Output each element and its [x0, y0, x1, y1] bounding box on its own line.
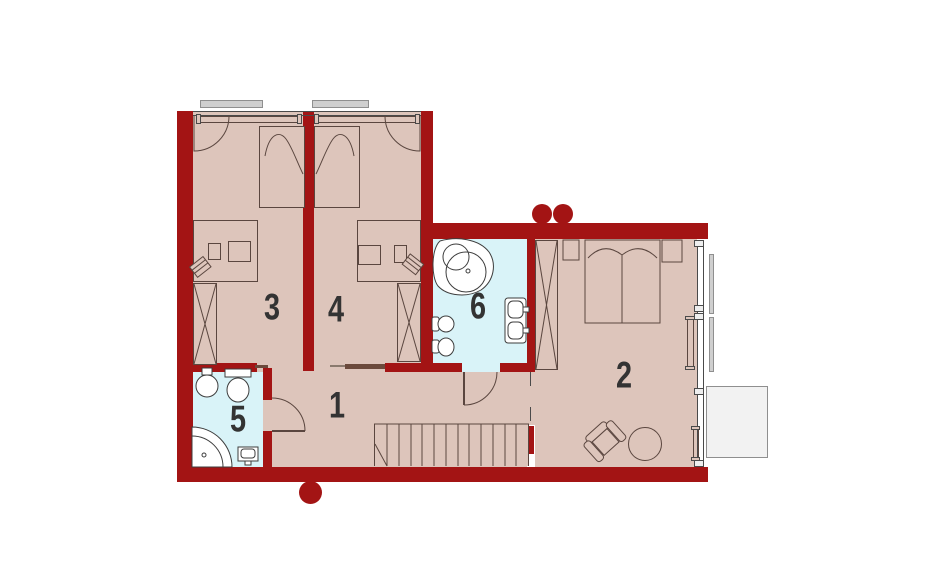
sliding-door-track-room4 [330, 365, 345, 367]
sliding-door-leaf-room4 [345, 364, 385, 369]
bed-room2 [562, 238, 684, 324]
room-label-1: 1 [329, 387, 345, 424]
wardrobe-room3 [193, 283, 217, 365]
room-label-5: 5 [230, 401, 246, 438]
wall-bottom-exterior [177, 467, 708, 482]
wall-under-room4 [385, 363, 462, 372]
radiator-cap [685, 366, 695, 370]
chair-room4 [398, 250, 428, 280]
bidet-bath5 [192, 366, 222, 400]
window-sill-room3 [200, 100, 263, 108]
desk-box-room3 [228, 241, 251, 262]
window-frame-joint [694, 313, 704, 320]
window-sill-room4 [312, 100, 369, 108]
door-swing-bath6 [463, 371, 499, 407]
window-sill-room2-lower [709, 317, 714, 372]
radiator-cap [691, 457, 700, 461]
room-label-2: 2 [616, 357, 632, 394]
room-label-4: 4 [328, 291, 344, 328]
chimney-circle-bottom [299, 481, 322, 504]
staircase [374, 423, 530, 467]
corner-bathtub [431, 237, 497, 299]
window-frame-joint [694, 240, 704, 247]
window-frame-joint [694, 460, 704, 467]
bed-room4 [314, 126, 360, 208]
sliding-door-leaf-room3 [255, 365, 268, 368]
wall-room5-right-lower [263, 431, 272, 467]
window-frame-joint [694, 305, 704, 312]
wardrobe-room4 [397, 283, 421, 362]
window-top-line-outer [193, 111, 421, 112]
radiator-room2-upper [687, 318, 694, 368]
door-swing-bath5 [271, 397, 307, 433]
bidet-bath6 [431, 335, 457, 358]
floor-passage [527, 372, 535, 425]
rail-end-cap [314, 114, 319, 124]
armchair-room2 [584, 420, 630, 464]
window-sill-room2-upper [709, 254, 714, 314]
casement-swing-arc-room4 [383, 115, 421, 153]
wall-room5-right-upper [263, 368, 272, 400]
double-sink-bath6 [504, 296, 532, 346]
chair-room3 [186, 252, 216, 282]
passage-jamb-lower [530, 407, 531, 421]
bed-room3 [259, 126, 305, 208]
room-label-3: 3 [264, 289, 280, 326]
window-frame-joint [694, 388, 704, 395]
passage-jamb-upper [530, 372, 531, 386]
floor-plan: 1 2 3 4 5 6 [0, 0, 940, 587]
balcony [706, 386, 768, 458]
round-table-room2 [628, 427, 662, 461]
corner-shower-bath5 [191, 426, 233, 468]
window-right-line-outer [703, 241, 704, 467]
radiator-cap [685, 316, 695, 320]
wall-bath6-bottom-right [500, 363, 535, 372]
rail-end-cap [297, 114, 302, 124]
wardrobe-room2 [535, 240, 558, 370]
radiator-room2-lower [693, 428, 699, 459]
desk-box-room4 [358, 245, 381, 265]
casement-swing-arc-room3 [193, 115, 231, 153]
toilet-bath6 [431, 313, 457, 335]
room-label-6: 6 [470, 288, 486, 325]
sink-bath5 [237, 446, 261, 467]
chimney-circle-top-left [532, 204, 552, 224]
chimney-circle-top-right [553, 204, 573, 224]
radiator-cap [691, 426, 700, 430]
